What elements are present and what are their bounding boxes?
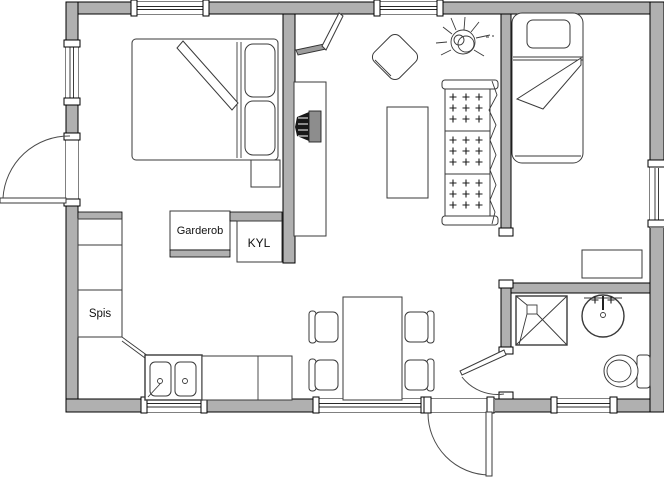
dining-table	[343, 297, 402, 400]
kitchen: Spis Garderob KYL	[78, 211, 292, 400]
window-bedroom2-right	[648, 160, 664, 228]
sofa	[442, 80, 498, 225]
dining-area	[309, 297, 434, 400]
pillow	[245, 44, 275, 97]
dining-chair	[309, 359, 338, 391]
dining-chair	[309, 311, 338, 343]
wall-bathroom-top	[511, 283, 650, 293]
nightstand	[251, 160, 280, 187]
door-leaf	[0, 198, 66, 203]
entry-door-left	[0, 133, 80, 206]
pillow	[527, 20, 570, 48]
dresser	[582, 250, 642, 278]
sofa-cushion	[445, 89, 490, 131]
doorway-bedroom2	[499, 228, 513, 288]
door-swing-arc	[462, 377, 504, 394]
sofa-armrest	[442, 80, 498, 89]
wall-living-bedroom2-upper	[501, 14, 511, 228]
window-bedroom1-top	[131, 0, 209, 16]
toilet-tank	[637, 355, 650, 388]
plant	[436, 17, 494, 56]
living-room	[294, 13, 498, 236]
bathroom	[516, 295, 650, 388]
sofa-cushion	[445, 131, 490, 174]
counter-corner	[122, 337, 148, 358]
door-leaf	[460, 350, 506, 375]
sofa-armrest	[442, 216, 498, 225]
door-leaf	[486, 412, 492, 476]
floor-plan: Spis Garderob KYL	[0, 0, 664, 480]
window-bedroom1-left	[64, 40, 80, 105]
pillow	[245, 101, 275, 155]
wall-bedroom1-living	[283, 14, 295, 263]
shower	[516, 296, 567, 345]
toilet	[604, 355, 650, 388]
stove-label: Spis	[89, 308, 112, 320]
window-bathroom-bottom	[551, 397, 617, 413]
fridge-plinth	[230, 212, 282, 221]
window-living-top	[374, 0, 443, 16]
wardrobe-plinth	[170, 250, 230, 257]
wall-living-bedroom2-lower	[501, 288, 511, 347]
fridge-label: KYL	[248, 236, 271, 250]
desk	[294, 82, 326, 236]
corner-shelf	[296, 44, 326, 55]
floor-plan-svg: Spis Garderob KYL	[0, 0, 664, 480]
bathroom-door	[460, 347, 513, 399]
door-swing-arc	[428, 413, 489, 475]
bedroom-2	[512, 13, 642, 278]
kitchen-counter-bottom	[202, 356, 292, 400]
corner-shelf-flap	[322, 13, 343, 50]
bedroom-1	[132, 39, 280, 187]
dining-chair	[405, 359, 434, 391]
entry-door-bottom	[424, 397, 495, 476]
washbasin	[582, 295, 624, 337]
sofa-cushion	[445, 174, 490, 216]
armchair	[370, 32, 421, 83]
coffee-table	[387, 107, 428, 198]
door-swing-arc	[3, 136, 70, 198]
counter-end	[78, 212, 122, 219]
dining-chair	[405, 311, 434, 343]
wardrobe-label: Garderob	[177, 225, 223, 237]
